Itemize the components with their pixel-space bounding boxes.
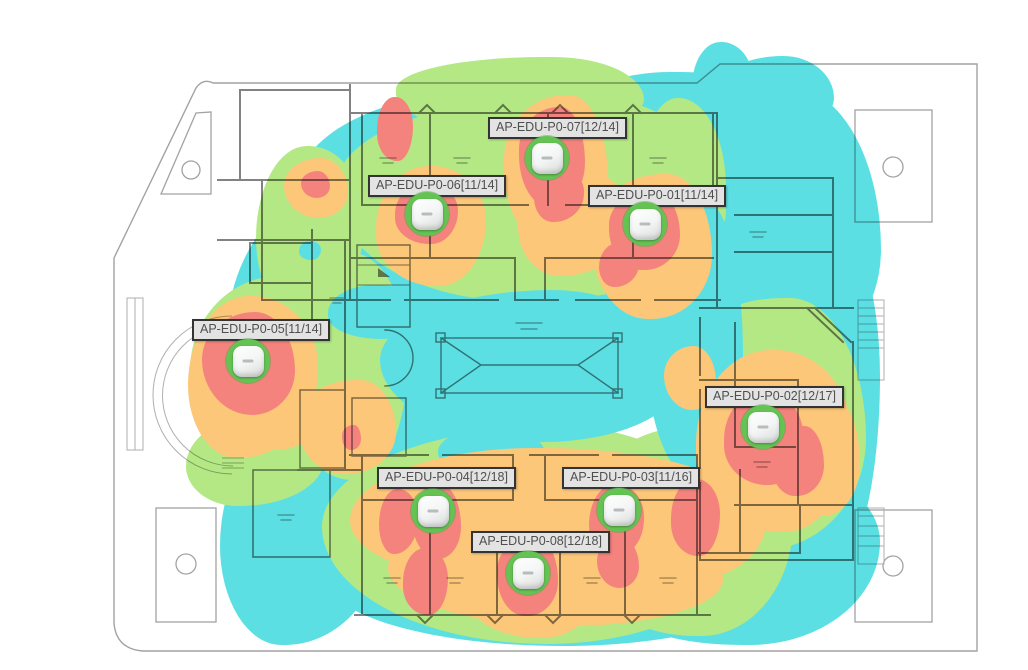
- ap-marker-ap-edu-p0-01[interactable]: [623, 202, 667, 246]
- ap-label-ap-edu-p0-04[interactable]: AP-EDU-P0-04[12/18]: [377, 467, 516, 489]
- access-point-icon: [418, 496, 449, 527]
- ap-marker-ap-edu-p0-05[interactable]: [226, 339, 270, 383]
- access-point-icon: [233, 346, 264, 377]
- ap-marker-ap-edu-p0-07[interactable]: [525, 136, 569, 180]
- ap-marker-ap-edu-p0-02[interactable]: [741, 405, 785, 449]
- ap-label-ap-edu-p0-05[interactable]: AP-EDU-P0-05[11/14]: [192, 319, 330, 341]
- access-point-icon: [630, 209, 661, 240]
- coverage-map-canvas: AP-EDU-P0-07[12/14]AP-EDU-P0-06[11/14]AP…: [0, 0, 1028, 670]
- ap-marker-ap-edu-p0-04[interactable]: [411, 489, 455, 533]
- ap-label-ap-edu-p0-01[interactable]: AP-EDU-P0-01[11/14]: [588, 185, 726, 207]
- access-point-icon: [604, 495, 635, 526]
- ap-label-ap-edu-p0-02[interactable]: AP-EDU-P0-02[12/17]: [705, 386, 844, 408]
- ap-label-ap-edu-p0-03[interactable]: AP-EDU-P0-03[11/16]: [562, 467, 700, 489]
- ap-marker-ap-edu-p0-08[interactable]: [506, 551, 550, 595]
- access-point-icon: [748, 412, 779, 443]
- access-point-icon: [513, 558, 544, 589]
- ap-marker-ap-edu-p0-03[interactable]: [597, 488, 641, 532]
- ap-marker-ap-edu-p0-06[interactable]: [405, 192, 449, 236]
- ap-label-ap-edu-p0-08[interactable]: AP-EDU-P0-08[12/18]: [471, 531, 610, 553]
- ap-layer: AP-EDU-P0-07[12/14]AP-EDU-P0-06[11/14]AP…: [0, 0, 1028, 670]
- access-point-icon: [532, 143, 563, 174]
- ap-label-ap-edu-p0-07[interactable]: AP-EDU-P0-07[12/14]: [488, 117, 627, 139]
- access-point-icon: [412, 199, 443, 230]
